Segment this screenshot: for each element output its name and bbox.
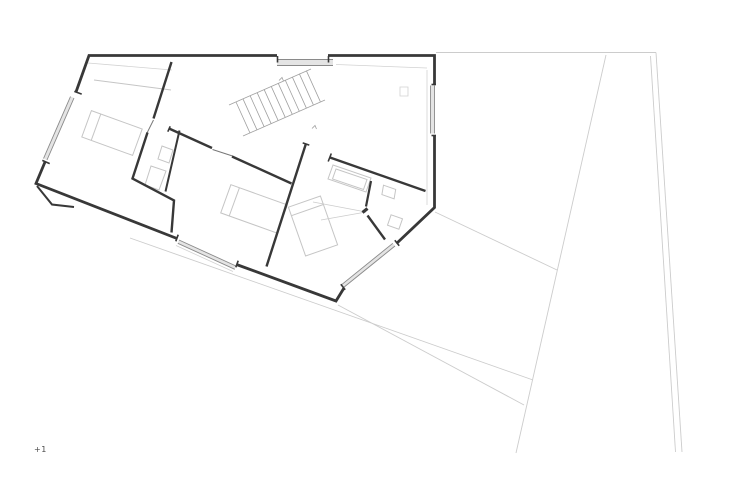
site-boundary-diagonal: [516, 55, 606, 453]
door-leaf-left-bedroom: [147, 120, 154, 133]
bathroom-door-block: [363, 209, 368, 213]
terrain-line-long: [130, 238, 533, 380]
exterior-wall-bottom-right-and-vertex: [237, 265, 345, 302]
cap-partition-top: [303, 143, 310, 145]
wall-bathroom-bottom: [368, 216, 386, 240]
inner-face-top-left-room: [88, 63, 172, 70]
cap-left-window-top: [74, 91, 81, 94]
wall-middle-right-partition: [267, 144, 307, 267]
bathroom-sink: [382, 185, 396, 199]
staircase: [229, 69, 325, 136]
bed-right-pillow-line: [291, 205, 323, 216]
furniture: [82, 80, 403, 256]
glazing-top-stair-window: [277, 59, 333, 66]
sill-line-bottom-window: [176, 246, 233, 272]
cap-bottom-window-left: [176, 235, 178, 242]
bed-left-bedroom: [82, 111, 142, 156]
exterior-wall-top-left-and-left-upper: [76, 56, 277, 93]
exterior-walls: [36, 56, 435, 302]
floor-plan-sheet: +1: [0, 0, 735, 491]
stair-direction-arrow-upper: [279, 78, 284, 82]
bed-left-pillow-line: [91, 114, 101, 140]
site-boundary-right-inner: [651, 56, 676, 452]
wardrobe-line-left-bedroom: [94, 80, 171, 90]
inner-face-top-right-room: [336, 65, 427, 69]
wall-bathroom-top: [330, 158, 426, 192]
toilet: [388, 215, 403, 229]
glazing-left-window: [44, 97, 75, 161]
door-leaf-middle-bedroom: [213, 150, 233, 157]
interior-walls: [133, 62, 426, 267]
bed-middle-bedroom: [221, 185, 288, 233]
bathroom-door-swing-lines: [313, 202, 366, 220]
glazing-diagonal-window: [341, 243, 395, 288]
wall-closet-divider: [166, 131, 180, 192]
glazing-right-window: [431, 86, 435, 134]
stair-stringer-upper: [229, 69, 311, 105]
stair-direction-arrow-lower: [312, 126, 317, 130]
exterior-wall-left-lower-and-bottom: [36, 162, 177, 239]
floor-plan-drawing: +1: [0, 0, 735, 491]
bed-middle-pillow-line: [229, 188, 239, 216]
exterior-wall-right-upper-and-top-right: [328, 56, 435, 85]
stair-treads: [236, 71, 320, 133]
cap-closet-wall: [168, 126, 170, 131]
wall-hall-left-upper: [154, 62, 172, 119]
site-lines: [130, 53, 682, 454]
site-boundary-right-outer: [656, 53, 682, 453]
wall-niche-square: [400, 87, 408, 96]
closet-fixture-upper: [158, 146, 173, 163]
wall-middle-bedroom-top: [232, 157, 292, 184]
terrain-line-upper: [435, 212, 557, 270]
exterior-wall-diagonal-and-right-lower: [397, 136, 435, 244]
doors: [147, 120, 368, 220]
floor-level-label: +1: [34, 445, 47, 454]
stair-stringer-lower: [243, 100, 325, 136]
terrain-line-middle: [338, 305, 524, 405]
